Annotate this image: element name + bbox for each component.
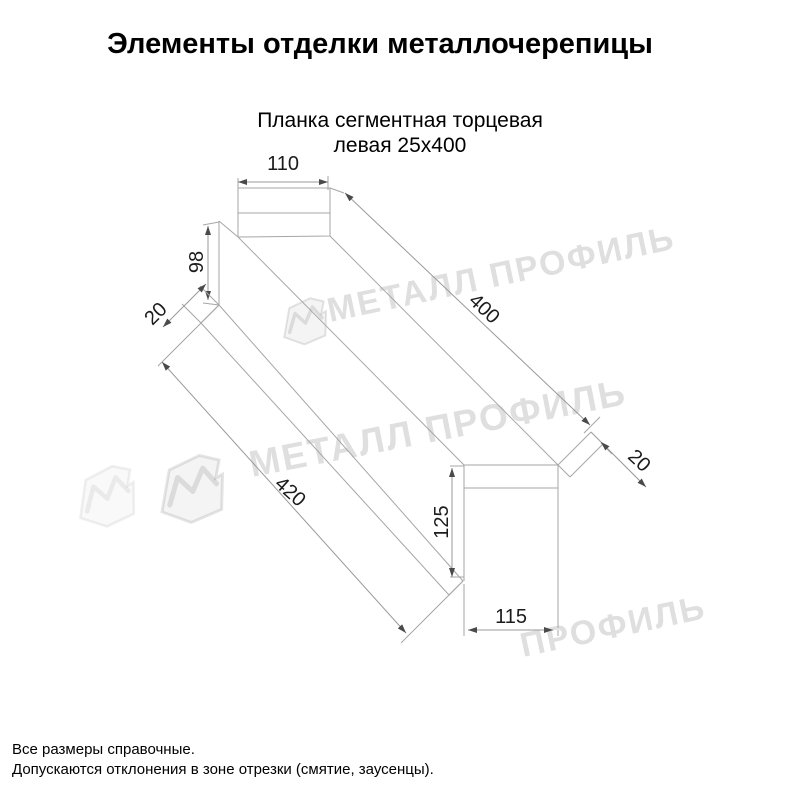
left-end-web-edge <box>219 221 238 305</box>
footer-note-line1: Все размеры справочные. <box>12 740 434 760</box>
dim-label-98: 98 <box>186 251 208 273</box>
left-end-top-flange <box>238 188 330 237</box>
dimension-end-height: 125 <box>431 466 464 577</box>
product-subtitle-line2: левая 25х400 <box>0 133 800 158</box>
dimension-top-width: 110 <box>238 153 328 190</box>
watermark-partial-text: ПРОФИЛЬ <box>517 588 710 664</box>
product-subtitle: Планка сегментная торцевая левая 25х400 <box>0 108 800 158</box>
footer-notes: Все размеры справочные. Допускаются откл… <box>12 740 434 780</box>
dim-label-125: 125 <box>431 505 453 538</box>
dim-label-20-right: 20 <box>623 445 654 476</box>
watermark-middle: МЕТАЛЛ ПРОФИЛЬ <box>73 371 630 530</box>
watermark-top: МЕТАЛЛ ПРОФИЛЬ <box>279 219 678 347</box>
product-subtitle-line1: Планка сегментная торцевая <box>0 108 800 133</box>
watermark-text: МЕТАЛЛ ПРОФИЛЬ <box>246 371 630 484</box>
page-title: Элементы отделки металлочерепицы <box>0 28 780 61</box>
right-end-face <box>464 465 558 628</box>
catalog-drawing-page: МЕТАЛЛ ПРОФИЛЬ МЕТАЛЛ ПРОФИЛЬ ПРОФИЛЬ 11… <box>0 0 800 800</box>
right-end-fold-tab <box>558 432 603 477</box>
dimension-left-height: 98 <box>186 222 219 305</box>
dim-label-115: 115 <box>495 606 527 628</box>
watermark-bottom: ПРОФИЛЬ <box>517 588 710 664</box>
dimension-left-fold: 20 <box>140 284 219 330</box>
dimension-right-fold: 20 <box>591 432 655 487</box>
dim-label-20-left: 20 <box>140 298 171 329</box>
footer-note-line2: Допускаются отклонения в зоне отрезки (с… <box>12 760 434 780</box>
